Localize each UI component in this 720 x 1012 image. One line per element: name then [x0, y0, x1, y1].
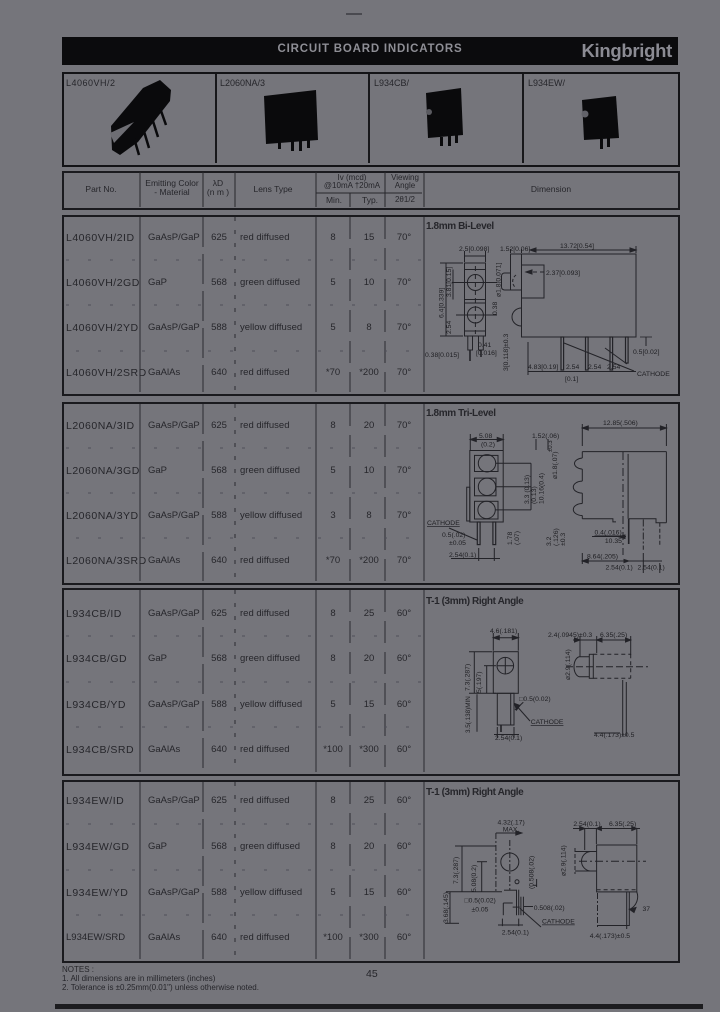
svg-text:(.07): (.07) — [514, 531, 521, 545]
svg-text:2.5[0.098]: 2.5[0.098] — [459, 246, 489, 253]
svg-text:⌀2.9(.114): ⌀2.9(.114) — [565, 649, 572, 680]
svg-text:0.38[0.015]: 0.38[0.015] — [425, 352, 459, 359]
svg-text:6.4[0.339]: 6.4[0.339] — [439, 288, 446, 318]
svg-text:4.32(.17): 4.32(.17) — [498, 820, 525, 827]
svg-text:CATHODE: CATHODE — [427, 520, 460, 527]
svg-text:±0.05: ±0.05 — [449, 540, 466, 547]
svg-text:(0.13): (0.13) — [531, 486, 538, 504]
svg-text:4.6(.181): 4.6(.181) — [490, 628, 517, 635]
svg-text:±0.3: ±0.3 — [560, 533, 567, 546]
svg-text:3.81[0.15]: 3.81[0.15] — [446, 267, 453, 297]
svg-text:CATHODE: CATHODE — [531, 719, 564, 726]
svg-text:6.35(.25): 6.35(.25) — [609, 821, 636, 828]
svg-text:±0.05: ±0.05 — [472, 907, 489, 914]
svg-text:MAX.: MAX. — [503, 827, 520, 834]
svg-text:7.3(.287): 7.3(.287) — [453, 857, 460, 884]
svg-text:1.52[0.06]: 1.52[0.06] — [500, 246, 530, 253]
svg-text:0.5(.02): 0.5(.02) — [442, 532, 465, 539]
svg-text:5.08: 5.08 — [479, 433, 492, 440]
svg-text:0.4(.016): 0.4(.016) — [595, 530, 622, 537]
svg-text:0.508(.02): 0.508(.02) — [534, 905, 565, 912]
svg-text:2.54(0.1): 2.54(0.1) — [573, 821, 600, 828]
svg-text:□0.5(0.02): □0.5(0.02) — [465, 898, 496, 905]
svg-text:8.64(.205): 8.64(.205) — [587, 554, 618, 561]
svg-text:2.54(0.1): 2.54(0.1) — [502, 930, 529, 937]
svg-text:2.37[0.093]: 2.37[0.093] — [546, 270, 580, 277]
svg-text:2.54: 2.54 — [446, 321, 453, 334]
svg-text:4.4(.173)±0.5: 4.4(.173)±0.5 — [590, 933, 631, 940]
svg-text:2.54(0.1): 2.54(0.1) — [495, 735, 522, 742]
svg-text:3.2: 3.2 — [546, 536, 553, 546]
svg-text:(0.508(.02): (0.508(.02) — [529, 856, 536, 889]
svg-text:±0.3: ±0.3 — [548, 440, 554, 452]
svg-text:CATHODE: CATHODE — [542, 919, 575, 926]
svg-text:[0.1]: [0.1] — [565, 376, 578, 383]
svg-text:6.35(.25): 6.35(.25) — [600, 632, 627, 639]
svg-text:5(.197): 5(.197) — [476, 671, 483, 693]
svg-text:0.41: 0.41 — [478, 342, 491, 349]
svg-text:12.85(.506): 12.85(.506) — [603, 420, 638, 427]
svg-text:0.5[0.02]: 0.5[0.02] — [633, 349, 660, 356]
svg-text:[0.016]: [0.016] — [476, 350, 497, 357]
svg-text:3.68(.145): 3.68(.145) — [443, 892, 450, 923]
svg-text:13.72[0.54]: 13.72[0.54] — [560, 243, 594, 250]
svg-text:□0.5(0.02): □0.5(0.02) — [519, 696, 550, 703]
svg-text:⌀2.9(.114): ⌀2.9(.114) — [561, 845, 568, 876]
svg-text:7.3(.287): 7.3(.287) — [465, 664, 472, 691]
svg-text:3.5(.138)MIN: 3.5(.138)MIN — [465, 696, 472, 733]
svg-text:0.38: 0.38 — [492, 302, 499, 315]
svg-text:CATHODE: CATHODE — [637, 371, 670, 378]
svg-text:2.54(0.1): 2.54(0.1) — [606, 565, 633, 572]
svg-text:37: 37 — [643, 906, 651, 913]
svg-text:2.54: 2.54 — [588, 364, 601, 371]
svg-text:4.4(.173)±0.5: 4.4(.173)±0.5 — [594, 732, 635, 739]
svg-text:5.08(0.2): 5.08(0.2) — [471, 865, 478, 892]
svg-text:3[0.118]±0.3: 3[0.118]±0.3 — [503, 334, 510, 371]
svg-text:(0.2): (0.2) — [481, 442, 495, 449]
svg-text:2.54(0.1): 2.54(0.1) — [449, 552, 476, 559]
svg-text:10.16(0.4): 10.16(0.4) — [539, 473, 546, 504]
svg-text:2.54: 2.54 — [566, 364, 579, 371]
svg-text:2.54(0.1): 2.54(0.1) — [638, 565, 665, 572]
svg-text:⌀1.8(.07): ⌀1.8(.07) — [552, 451, 559, 479]
svg-text:2.54: 2.54 — [607, 364, 620, 371]
svg-text:1.52(.06): 1.52(.06) — [532, 433, 559, 440]
svg-text:4.83[0.19]: 4.83[0.19] — [528, 364, 558, 371]
svg-text:2.4(.0945)±0.3: 2.4(.0945)±0.3 — [548, 632, 592, 639]
svg-text:3.3 (0.13): 3.3 (0.13) — [524, 475, 531, 504]
svg-text:1.78: 1.78 — [507, 532, 514, 545]
svg-text:⌀1.8[0.071]: ⌀1.8[0.071] — [496, 263, 503, 297]
svg-text:10.35: 10.35 — [605, 538, 622, 545]
svg-text:(.126): (.126) — [553, 528, 560, 546]
